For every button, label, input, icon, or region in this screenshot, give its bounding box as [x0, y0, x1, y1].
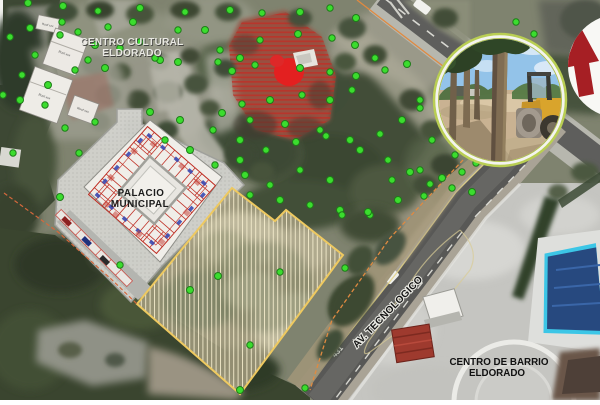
svg-text:CENTRO DE BARRIO: CENTRO DE BARRIO	[449, 357, 548, 368]
svg-text:CENTRO CULTURAL: CENTRO CULTURAL	[80, 37, 183, 48]
svg-text:PALACIO: PALACIO	[118, 188, 165, 199]
svg-text:ELDORADO: ELDORADO	[102, 48, 162, 59]
svg-text:ELDORADO: ELDORADO	[469, 368, 525, 379]
svg-text:MUNICIPAL: MUNICIPAL	[111, 199, 169, 210]
